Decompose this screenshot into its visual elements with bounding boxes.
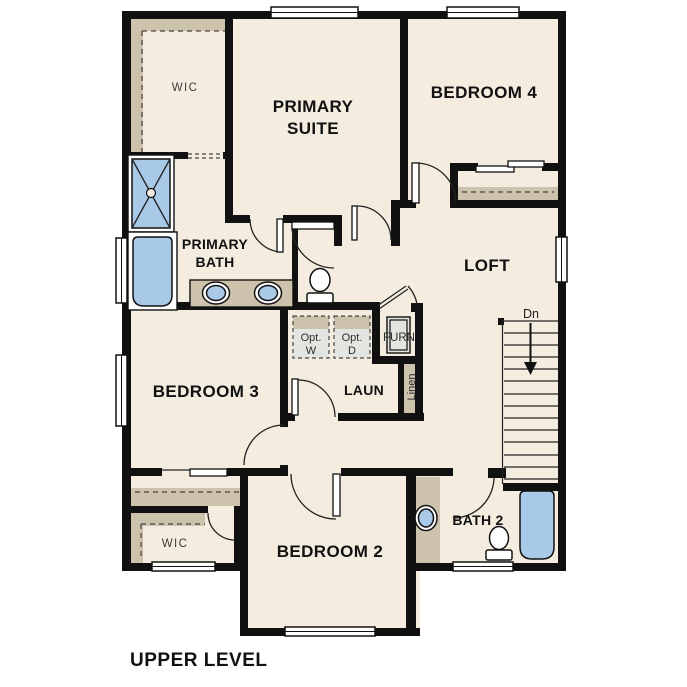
label-primary-suite-line1: PRIMARY [273, 97, 354, 116]
label-primary-bath-line2: BATH [195, 254, 234, 270]
wall-stub-toilet-room [334, 215, 342, 246]
wall-linen-west [398, 362, 404, 413]
wall-bedroom2-east [406, 468, 416, 636]
bathtub-bath2 [520, 491, 554, 559]
wall-furnace-south [372, 356, 423, 364]
label-opt-dryer-line2: D [348, 345, 356, 357]
bath2-sink [415, 506, 437, 531]
shower [128, 155, 174, 232]
window-bath2-south [453, 562, 513, 571]
wall-bedroom3-south-b [227, 468, 288, 476]
toilet-primary [307, 269, 333, 304]
door-leaf-bedroom2 [333, 474, 340, 516]
wall-stairs-south [503, 483, 566, 491]
wall-bedroom4-closet-north-a [458, 163, 478, 171]
sink-bowl-left [207, 286, 226, 301]
door-leaf-primary-suite [352, 206, 357, 240]
floor-plan-drawing: WIC PRIMARY SUITE BEDROOM 4 PRIMARY BATH… [0, 0, 687, 687]
label-opt-dryer-line1: Opt. [342, 332, 363, 344]
window-primary-bath-west [116, 238, 127, 303]
wall-primary-suite-south-a [225, 215, 250, 223]
label-bath2: BATH 2 [452, 512, 503, 528]
label-opt-washer-line1: Opt. [301, 332, 322, 344]
label-wic-primary: WIC [172, 82, 199, 94]
floor-plan-page: WIC PRIMARY SUITE BEDROOM 4 PRIMARY BATH… [0, 0, 687, 687]
label-bedroom2: BEDROOM 2 [277, 542, 384, 561]
window-bedroom2-south [285, 627, 375, 636]
window-bedroom3-west [116, 355, 127, 426]
door-leaf-primary-bath [277, 219, 283, 252]
primary-vanity [190, 280, 293, 307]
wall-laundry-south-b [338, 413, 424, 421]
wall-bedroom3-south-a [122, 468, 162, 476]
optional-dryer-shelf [334, 316, 370, 329]
toilet-bath2-tank [486, 550, 512, 560]
wall-bedroom3-east [280, 302, 288, 427]
wall-bedroom4-west [400, 11, 408, 208]
wall-bedroom4-south [450, 200, 566, 208]
label-primary-suite-line2: SUITE [287, 119, 339, 138]
window-wic-south [152, 562, 215, 571]
door-leaf-bedroom4 [412, 163, 419, 203]
sink-bowl-right [259, 286, 278, 301]
window-loft-east [556, 237, 567, 282]
label-wic-bedroom2: WIC [162, 538, 189, 550]
shower-drain [147, 189, 156, 198]
bedroom3-closet-shelf [131, 488, 243, 506]
window-primary-suite-north [271, 7, 358, 18]
door-leaf-toilet-room [292, 222, 334, 229]
bath2-sink-bowl [419, 509, 434, 527]
label-primary-bath-line1: PRIMARY [182, 236, 249, 252]
label-loft: LOFT [464, 256, 510, 275]
wall-bedroom2-north [341, 468, 406, 476]
bathtub-primary-basin [133, 237, 172, 306]
wall-furnace-west [372, 304, 380, 364]
bathtub-primary [128, 232, 177, 310]
wall-bath2-north-a [406, 468, 453, 476]
wall-stub-suite-entry [391, 200, 400, 246]
window-bedroom4-north [447, 7, 519, 18]
label-opt-washer-line2: W [306, 345, 317, 357]
label-linen: Linen [406, 374, 418, 401]
wall-wic-bedroom2-east [234, 506, 243, 563]
label-bedroom3: BEDROOM 3 [153, 382, 260, 401]
label-bedroom4: BEDROOM 4 [431, 83, 538, 102]
wall-bath2-north-b [488, 468, 506, 478]
plan-title: UPPER LEVEL [130, 650, 267, 671]
optional-washer-shelf [293, 316, 329, 329]
wall-bedroom4-closet-north-b [542, 163, 566, 171]
toilet-primary-bowl [310, 269, 330, 292]
label-stairs-dn: Dn [523, 307, 539, 321]
door-leaf-laundry [292, 379, 298, 415]
bedroom4-closet-shelf [458, 187, 558, 200]
toilet-bath2-bowl [490, 527, 509, 550]
wall-wic-bedroom2-north [131, 506, 208, 513]
label-furnace: FURN [383, 332, 415, 344]
toilet-primary-tank [307, 293, 333, 303]
label-laundry: LAUN [344, 382, 384, 398]
wall-wic-primary-south-b [223, 152, 233, 159]
wall-wic-primary-east [225, 19, 233, 223]
